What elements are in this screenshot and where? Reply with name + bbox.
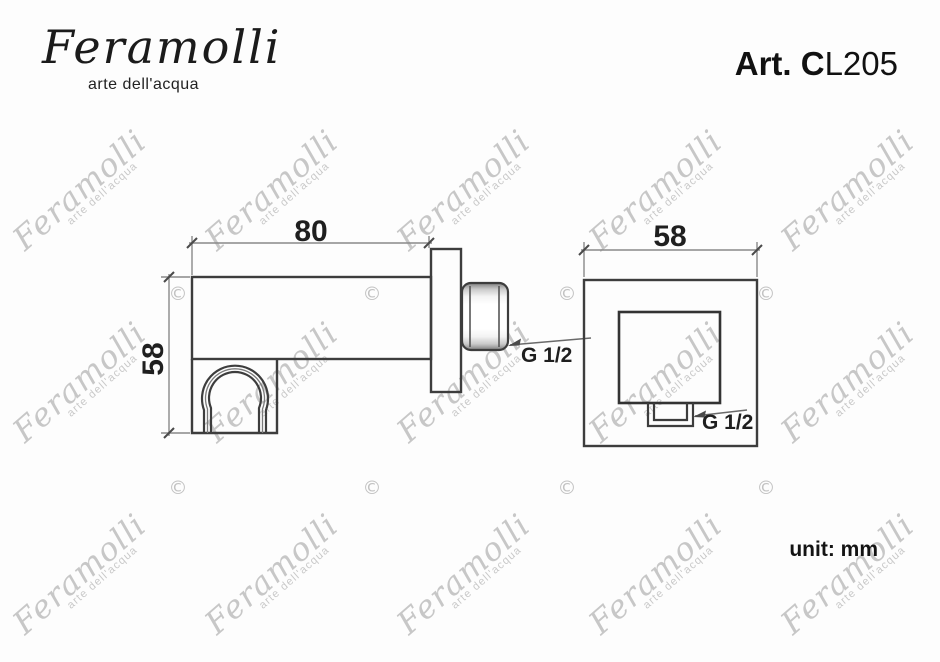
- dim58front-value: 58: [653, 220, 686, 253]
- article-code-suffix: L205: [825, 45, 898, 82]
- front-view-drawing: 58 G 1/2: [579, 220, 762, 446]
- front-thread-label: G 1/2: [702, 411, 753, 434]
- product-drawing: 80 58 G 1/2 58: [0, 0, 940, 662]
- holder-clip-inner-arc: [209, 372, 261, 433]
- side-body-outline: [192, 277, 431, 359]
- holder-clip-mid-arc: [206, 369, 265, 433]
- dim80-value: 80: [294, 215, 327, 248]
- brand-logo-script: Feramolli: [42, 24, 282, 70]
- brand-logo-tagline: arte dell'acqua: [88, 76, 199, 94]
- unit-label: unit: mm: [789, 538, 878, 562]
- side-thread-connector: [462, 283, 508, 350]
- dim58side-value: 58: [137, 342, 170, 375]
- article-code-prefix: Art. C: [735, 45, 825, 82]
- side-thread-label: G 1/2: [521, 344, 572, 367]
- front-thread-notch-inner: [654, 403, 687, 420]
- front-body-outline: [619, 312, 720, 403]
- article-code: Art. CL205: [735, 47, 898, 80]
- technical-drawing-page: Feramolliarte dell'acquaFeramolliarte de…: [0, 0, 940, 662]
- side-thread-leader-arrow: [508, 339, 521, 347]
- side-wall-plate-outline: [431, 249, 461, 392]
- side-view-drawing: 80 58 G 1/2: [137, 215, 591, 438]
